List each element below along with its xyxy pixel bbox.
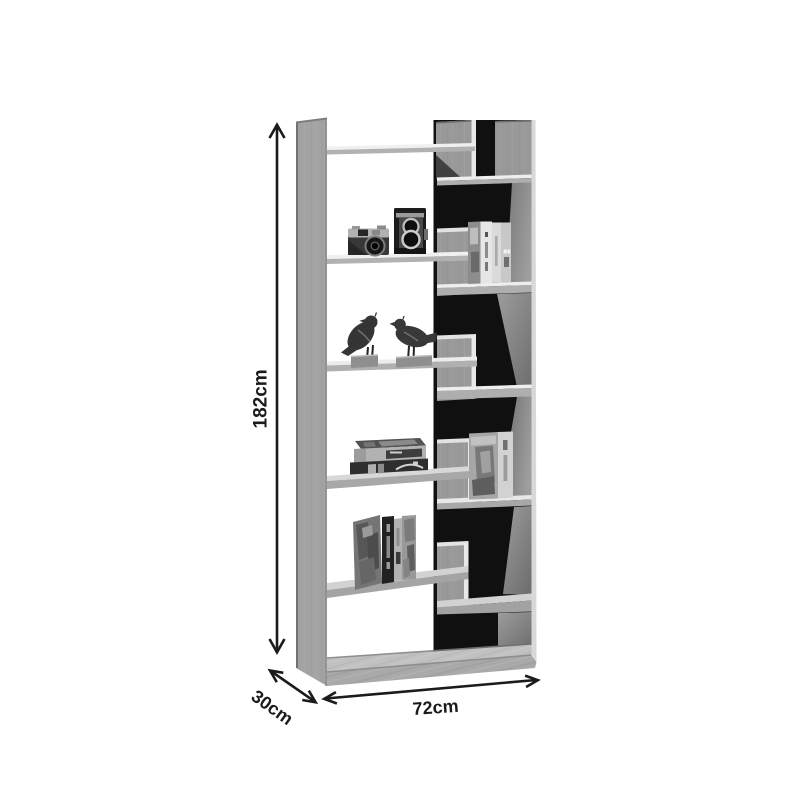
svg-text:182cm: 182cm: [251, 369, 272, 428]
svg-text:72cm: 72cm: [412, 696, 459, 719]
